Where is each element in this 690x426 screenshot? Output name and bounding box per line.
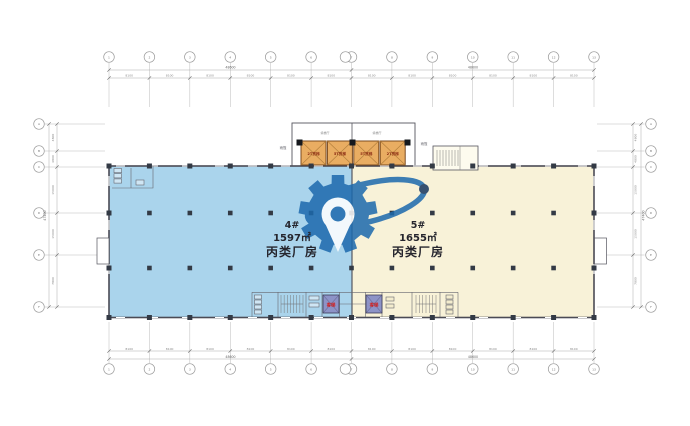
passenger-elevator-left: 客梯	[323, 295, 339, 313]
axis-bubble-label: B	[650, 149, 652, 153]
column-marker	[470, 266, 475, 271]
axis-bubble-label: 8	[391, 55, 393, 59]
axis-bubble-label: 3	[189, 55, 191, 59]
axis-bubble-label: 2	[148, 55, 150, 59]
dim-label: 8100	[125, 74, 133, 78]
dim-total-label: 48600	[225, 355, 235, 359]
column-marker	[405, 140, 411, 146]
freight-elevator-label: 2T货梯	[387, 151, 400, 156]
right-side-entrance	[595, 238, 607, 264]
column-marker	[511, 211, 516, 216]
axis-bubble-label: B	[38, 149, 40, 153]
column-marker	[228, 315, 233, 320]
dim-label: 8100	[408, 347, 416, 351]
dim-label: 4800	[633, 134, 637, 142]
column-marker	[268, 211, 273, 216]
column-marker	[349, 164, 354, 169]
building5-floor-area	[352, 166, 594, 318]
column-marker	[268, 315, 273, 320]
column-marker	[592, 164, 597, 169]
dim-label: 4800	[51, 134, 55, 142]
axis-bubble-label: F	[650, 305, 652, 309]
dim-label: 8100	[327, 74, 335, 78]
column-marker	[511, 315, 516, 320]
lobby-label-right: 候梯厅	[372, 130, 381, 135]
floor-plan-page: 1234567891011121381008100810081008100810…	[0, 0, 690, 426]
column-marker	[187, 164, 192, 169]
column-marker	[297, 140, 303, 146]
column-marker	[309, 315, 314, 320]
canopy-label-left: 雨篷	[280, 145, 287, 150]
axis-bubble-label: 9	[431, 367, 433, 371]
dim-label: 8100	[489, 74, 497, 78]
freight-elevator-bank: 2T货梯5T货梯5T货梯2T货梯	[297, 140, 411, 166]
dim-label: 8100	[206, 347, 214, 351]
column-marker	[187, 315, 192, 320]
freight-elevator-label: 2T货梯	[307, 151, 320, 156]
column-marker	[268, 266, 273, 271]
dim-label: 8100	[530, 347, 538, 351]
column-marker	[470, 164, 475, 169]
axis-bubble-label: 12	[552, 367, 556, 371]
dim-label: 8100	[570, 74, 578, 78]
axis-bubble-label: 6	[310, 367, 312, 371]
column-marker	[430, 266, 435, 271]
axis-bubble-label: 7	[351, 55, 353, 59]
passenger-elevator-right-label: 客梯	[369, 302, 379, 309]
column-marker	[430, 211, 435, 216]
axis-bubble-label: 2	[148, 367, 150, 371]
dim-label: 7800	[633, 277, 637, 285]
column-marker	[107, 315, 112, 320]
dim-label: 8100	[206, 74, 214, 78]
column-marker	[349, 315, 354, 320]
column-marker	[147, 211, 152, 216]
column-marker	[592, 315, 597, 320]
lobby-label-left: 候梯厅	[320, 130, 329, 135]
left-side-entrance	[97, 238, 109, 264]
watermark-pin-dot	[331, 207, 346, 222]
axis-bubble	[340, 52, 351, 63]
dim-label: 8100	[408, 74, 416, 78]
axis-bubble-label: E	[650, 253, 652, 257]
axis-bubble-label: 8	[391, 367, 393, 371]
dim-label: 8100	[287, 74, 295, 78]
dim-total-label: 47400	[641, 210, 645, 220]
column-marker	[228, 164, 233, 169]
column-marker	[107, 164, 112, 169]
axis-bubble-label: C	[650, 165, 652, 169]
dim-total-label: 47400	[43, 210, 47, 220]
dim-label: 8100	[327, 347, 335, 351]
axis-bubble-label: 4	[229, 55, 231, 59]
dim-label: 15000	[51, 229, 55, 239]
column-marker	[389, 164, 394, 169]
dim-label: 15000	[51, 185, 55, 195]
axis-bubble-label: 1	[108, 55, 110, 59]
axis-bubble-label: 11	[511, 55, 515, 59]
building5-number: 5#	[411, 220, 426, 231]
axis-bubble-label: 12	[552, 55, 556, 59]
column-marker	[511, 164, 516, 169]
dim-total-label: 48600	[468, 355, 478, 359]
dim-label: 8100	[287, 347, 295, 351]
column-marker	[309, 164, 314, 169]
axis-bubble-label: 11	[511, 367, 515, 371]
column-marker	[551, 211, 556, 216]
column-marker	[430, 164, 435, 169]
column-marker	[350, 140, 356, 146]
column-marker	[430, 315, 435, 320]
dim-total-label: 48600	[225, 66, 235, 70]
column-marker	[228, 211, 233, 216]
dim-label: 8100	[125, 347, 133, 351]
column-marker	[511, 266, 516, 271]
column-marker	[592, 211, 597, 216]
dim-label: 4800	[51, 155, 55, 163]
building5-area: 1655㎡	[399, 231, 437, 244]
freight-elevator-label: 5T货梯	[360, 151, 373, 156]
dim-label: 8100	[530, 74, 538, 78]
axis-bubble-label: F	[38, 305, 40, 309]
passenger-elevator-left-label: 客梯	[326, 302, 336, 309]
floor-plan-drawing: 1234567891011121381008100810081008100810…	[0, 0, 690, 426]
dim-label: 15000	[633, 229, 637, 239]
dim-label: 4800	[633, 155, 637, 163]
freight-elevator-label: 5T货梯	[334, 151, 347, 156]
passenger-elevator-right: 客梯	[366, 295, 382, 313]
dim-label: 8100	[247, 74, 255, 78]
column-marker	[147, 266, 152, 271]
column-marker	[188, 266, 193, 271]
column-marker	[551, 164, 556, 169]
axis-bubble-label: 5	[270, 55, 272, 59]
axis-bubble-label: 1	[108, 367, 110, 371]
column-marker	[389, 315, 394, 320]
canopy-label-right: 雨篷	[421, 141, 428, 146]
dim-label: 8100	[489, 347, 497, 351]
building5-category: 丙类厂房	[392, 244, 444, 259]
dim-label: 15000	[633, 185, 637, 195]
building4-number: 4#	[285, 220, 300, 231]
dim-label: 8100	[449, 74, 457, 78]
column-marker	[228, 266, 233, 271]
column-marker	[147, 164, 152, 169]
column-marker	[470, 315, 475, 320]
column-marker	[107, 266, 112, 271]
building4-category: 丙类厂房	[266, 244, 318, 259]
axis-bubble	[340, 364, 351, 375]
axis-bubble-label: E	[38, 253, 40, 257]
column-marker	[107, 211, 112, 216]
dim-label: 8100	[570, 347, 578, 351]
dim-label: 8100	[166, 74, 174, 78]
column-marker	[390, 266, 395, 271]
column-marker	[268, 164, 273, 169]
building4-area: 1597㎡	[273, 231, 311, 244]
dim-total-label: 48600	[468, 66, 478, 70]
axis-bubble-label: 3	[189, 367, 191, 371]
dim-label: 8100	[449, 347, 457, 351]
dim-label: 7800	[51, 277, 55, 285]
axis-bubble-label: 10	[471, 55, 475, 59]
axis-bubble-label: 13	[592, 55, 596, 59]
axis-bubble-label: C	[38, 165, 40, 169]
column-marker	[188, 211, 193, 216]
axis-bubble-label: 10	[471, 367, 475, 371]
dim-label: 8100	[368, 347, 376, 351]
axis-bubble-label: 9	[431, 55, 433, 59]
dim-label: 8100	[166, 347, 174, 351]
column-marker	[551, 315, 556, 320]
column-marker	[470, 211, 475, 216]
column-marker	[349, 266, 354, 271]
watermark-orbit-dot	[419, 184, 429, 194]
dim-label: 8100	[368, 74, 376, 78]
column-marker	[309, 266, 314, 271]
axis-bubble-label: 4	[229, 367, 231, 371]
axis-bubble-label: 7	[351, 367, 353, 371]
column-marker	[551, 266, 556, 271]
axis-bubble-label: 13	[592, 367, 596, 371]
column-marker	[592, 266, 597, 271]
axis-bubble-label: 5	[270, 367, 272, 371]
dim-label: 8100	[247, 347, 255, 351]
column-marker	[147, 315, 152, 320]
axis-bubble-label: 6	[310, 55, 312, 59]
